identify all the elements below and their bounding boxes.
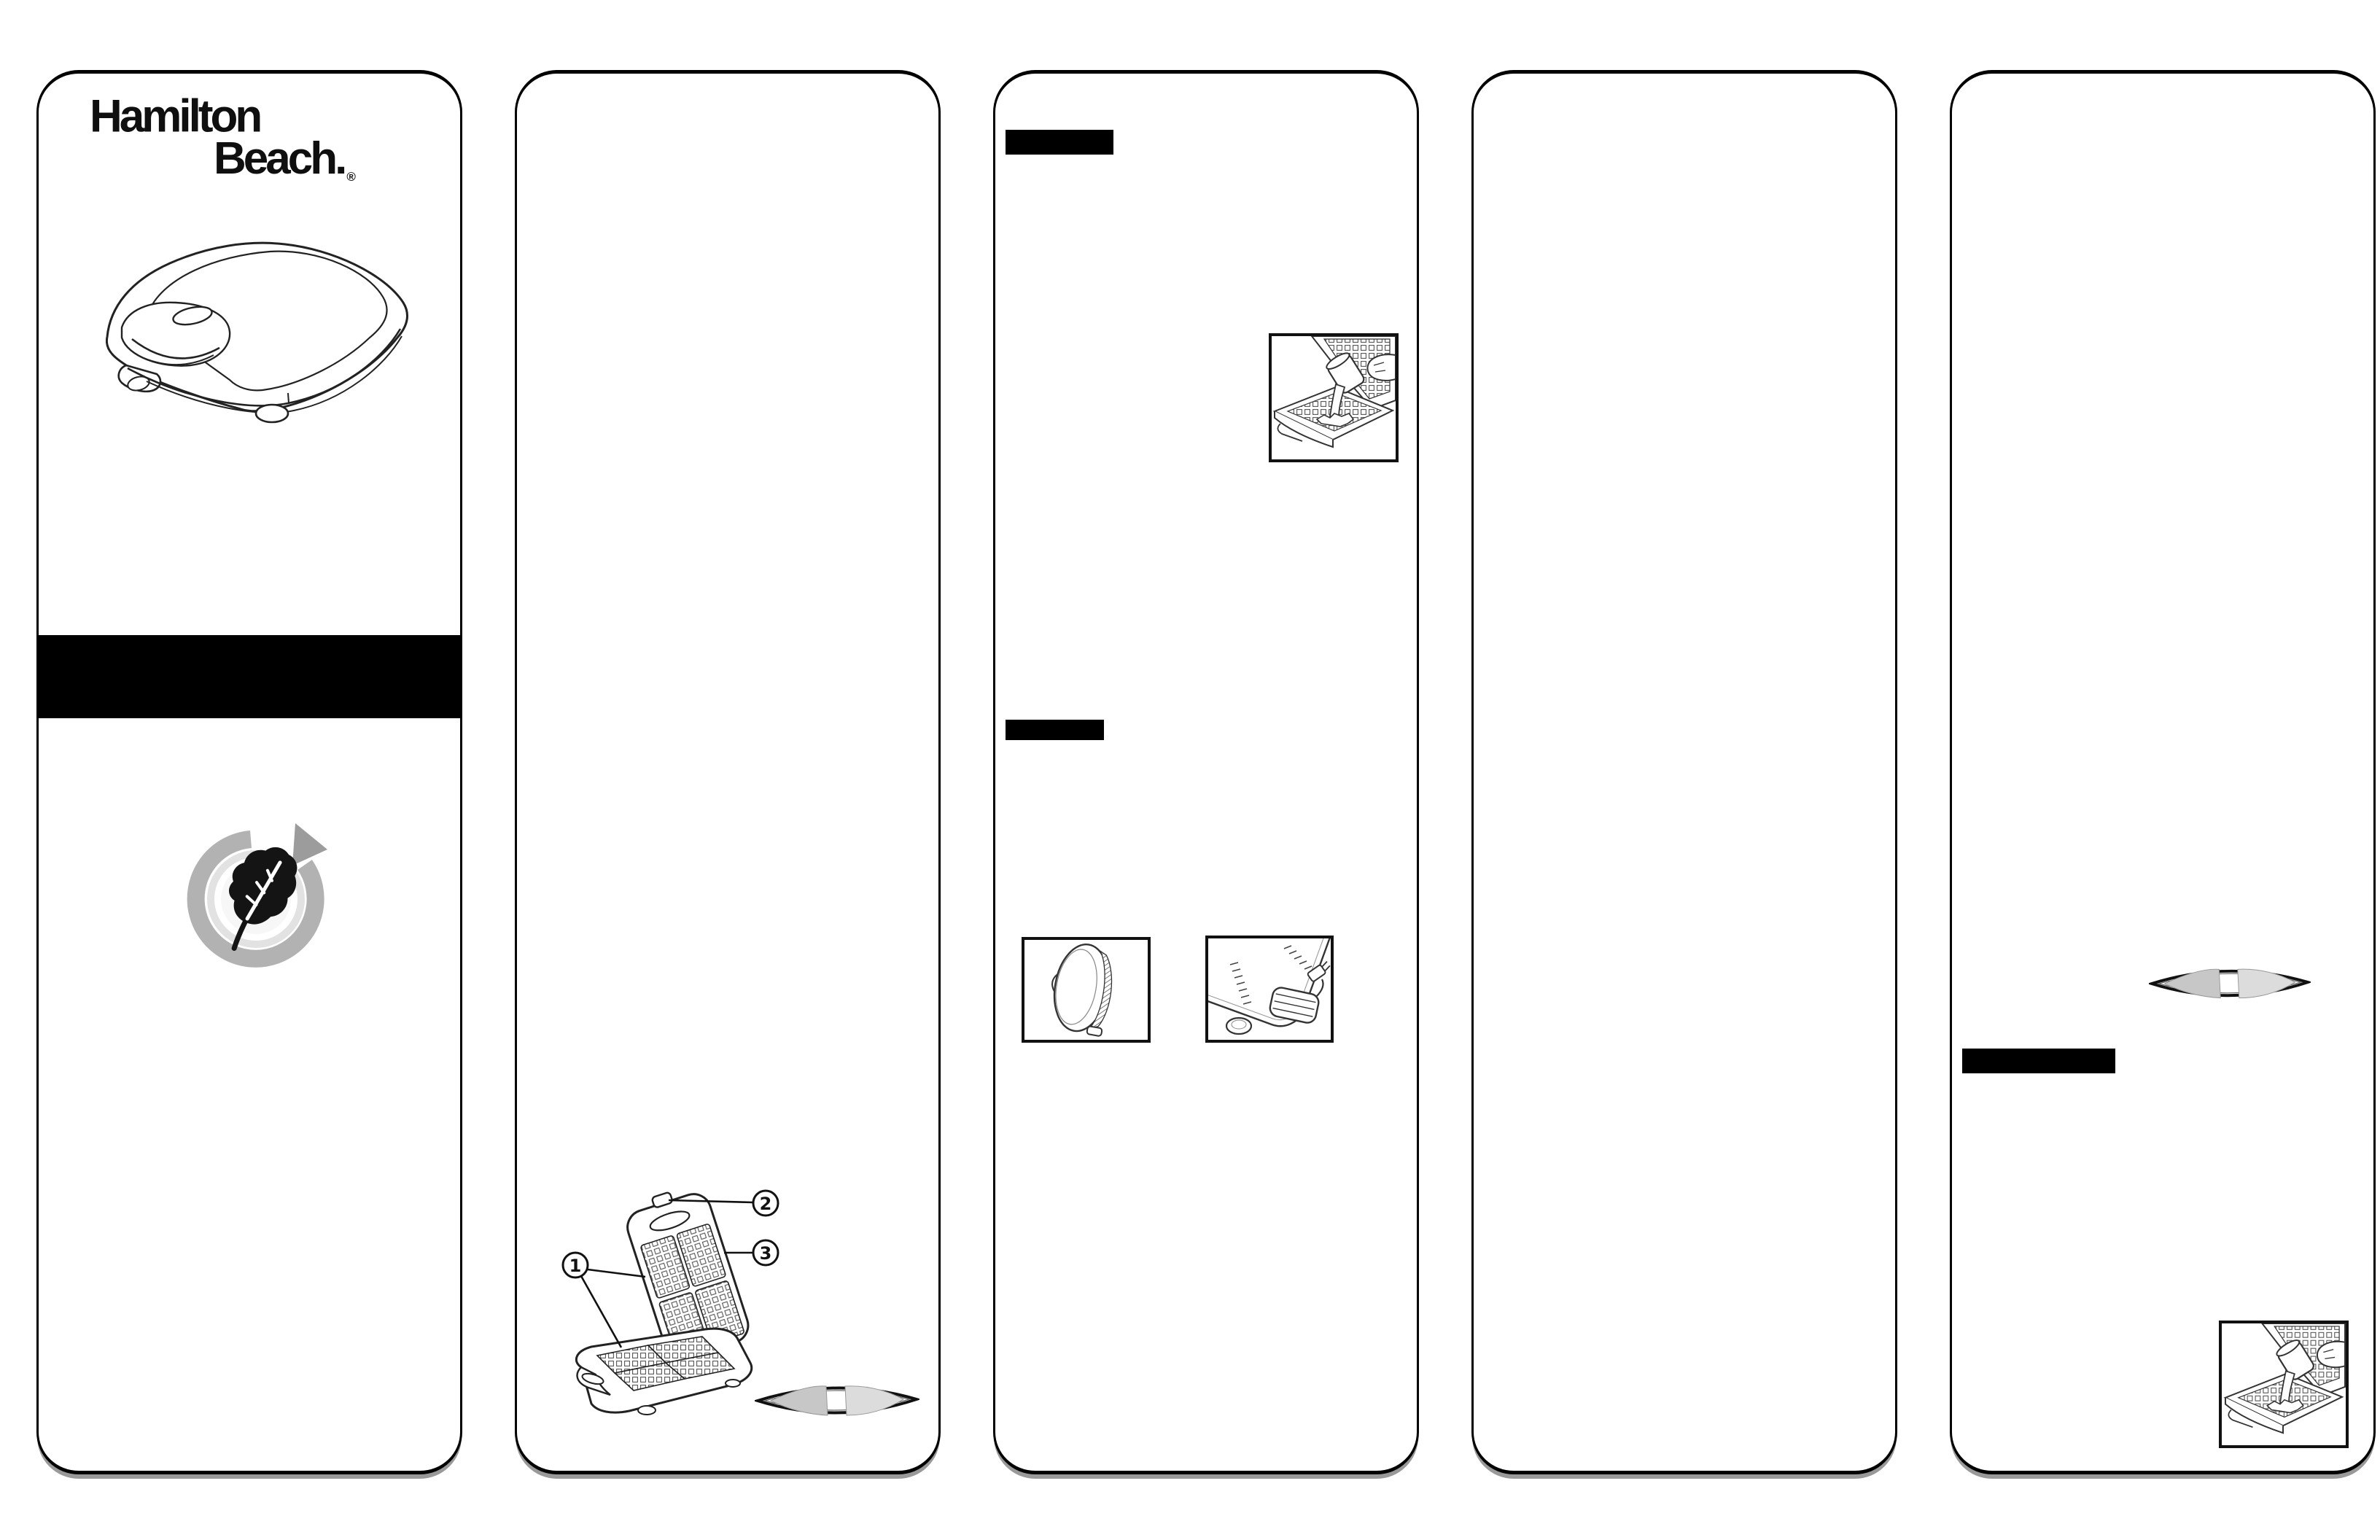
svg-text:3: 3 bbox=[760, 1243, 772, 1264]
upright-storage-art bbox=[1024, 940, 1148, 1040]
upright-storage-figure bbox=[1022, 937, 1151, 1043]
eco-leaf-recycle-badge bbox=[177, 817, 335, 975]
redacted-heading-bar bbox=[1962, 1049, 2115, 1073]
cord-wrap-art bbox=[1208, 938, 1331, 1040]
redacted-black-band bbox=[36, 635, 462, 718]
pour-batter-art bbox=[1272, 336, 1396, 459]
svg-text:1: 1 bbox=[569, 1256, 582, 1276]
closed-waffle-maker-illustration bbox=[106, 240, 415, 428]
callout-2: 2 bbox=[753, 1191, 778, 1216]
logo-line2: Beach.® bbox=[214, 136, 354, 182]
recycle-arrowhead-icon bbox=[292, 823, 327, 866]
waffle-quarter-plate-shape bbox=[755, 1374, 919, 1427]
redacted-heading-bar bbox=[1006, 720, 1104, 740]
hamilton-beach-logo: Hamilton Beach.® bbox=[90, 94, 354, 182]
redacted-heading-bar bbox=[1006, 130, 1113, 155]
panel-3-instructions bbox=[993, 70, 1419, 1474]
pour-batter-figure bbox=[1269, 333, 1399, 462]
waffle-quarter-plate-shape bbox=[2149, 956, 2311, 1011]
pour-batter-figure bbox=[2219, 1321, 2349, 1448]
panel-5-instructions bbox=[1950, 70, 2376, 1474]
lower-base bbox=[576, 1329, 751, 1415]
svg-text:2: 2 bbox=[760, 1194, 772, 1214]
cord-wrap-figure bbox=[1205, 936, 1334, 1043]
pour-batter-art bbox=[2222, 1323, 2346, 1445]
callout-3: 3 bbox=[753, 1240, 778, 1265]
panel-2-parts: 2 3 1 bbox=[515, 70, 941, 1474]
logo-line1: Hamilton bbox=[90, 93, 354, 139]
callout-1: 1 bbox=[563, 1253, 588, 1277]
panel-4-blank bbox=[1471, 70, 1897, 1474]
registered-trademark-icon: ® bbox=[346, 170, 356, 184]
panel-1-cover: Hamilton Beach.® bbox=[36, 70, 462, 1474]
manual-foldout-scan: Hamilton Beach.® bbox=[0, 0, 2380, 1540]
